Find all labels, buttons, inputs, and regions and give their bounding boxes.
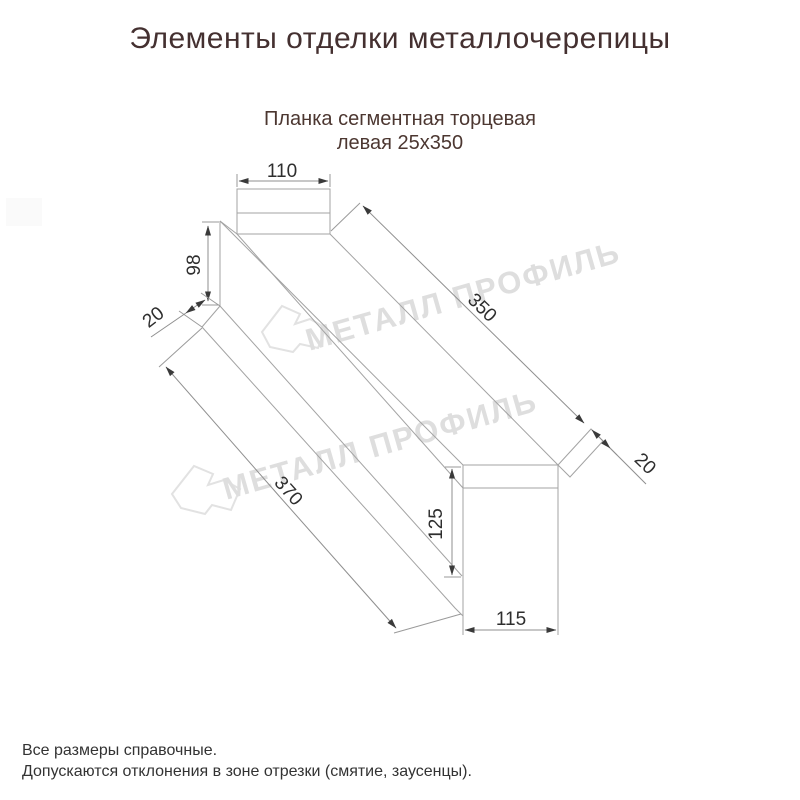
far-top-flange bbox=[237, 189, 330, 234]
page: Элементы отделки металлочерепицы Планка … bbox=[0, 0, 800, 800]
length-line-top-left bbox=[220, 221, 463, 465]
dimension-125: 125 bbox=[426, 467, 461, 577]
dimension-label-125: 125 bbox=[426, 508, 447, 540]
footer-notes: Все размеры справочные. Допускаются откл… bbox=[22, 740, 472, 782]
scan-artifact bbox=[6, 198, 42, 226]
dimension-20-right: 20 bbox=[592, 430, 660, 484]
dimension-110: 110 bbox=[237, 161, 330, 187]
dimension-label-20-right: 20 bbox=[630, 449, 660, 479]
watermark-upper: МЕТАЛЛ ПРОФИЛЬ bbox=[262, 234, 625, 357]
near-hem-flange bbox=[558, 429, 603, 477]
footer-note-1: Все размеры справочные. bbox=[22, 740, 472, 761]
watermark-text-upper: МЕТАЛЛ ПРОФИЛЬ bbox=[302, 234, 625, 357]
dimension-label-98: 98 bbox=[184, 254, 205, 275]
dimension-98: 98 bbox=[184, 222, 219, 305]
dimension-label-110: 110 bbox=[267, 161, 297, 182]
technical-drawing: МЕТАЛЛ ПРОФИЛЬ МЕТАЛЛ ПРОФИЛЬ bbox=[0, 0, 800, 800]
far-hem-edge bbox=[202, 306, 220, 327]
footer-note-2: Допускаются отклонения в зоне отрезки (с… bbox=[22, 761, 472, 782]
watermark-lower: МЕТАЛЛ ПРОФИЛЬ bbox=[172, 383, 542, 514]
dimension-115: 115 bbox=[465, 609, 556, 630]
dimension-label-115: 115 bbox=[496, 609, 526, 630]
